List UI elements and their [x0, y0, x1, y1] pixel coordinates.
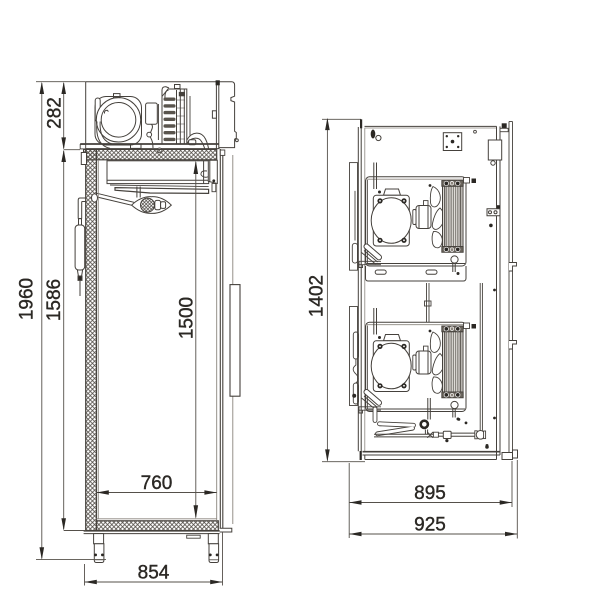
svg-text:895: 895 — [414, 483, 446, 504]
svg-text:1960: 1960 — [17, 278, 38, 320]
svg-text:1402: 1402 — [307, 275, 328, 317]
svg-text:1500: 1500 — [177, 297, 198, 339]
svg-text:282: 282 — [45, 97, 66, 129]
svg-text:760: 760 — [141, 473, 173, 494]
svg-text:854: 854 — [138, 563, 170, 584]
svg-text:925: 925 — [414, 515, 446, 536]
svg-text:1586: 1586 — [44, 279, 65, 321]
